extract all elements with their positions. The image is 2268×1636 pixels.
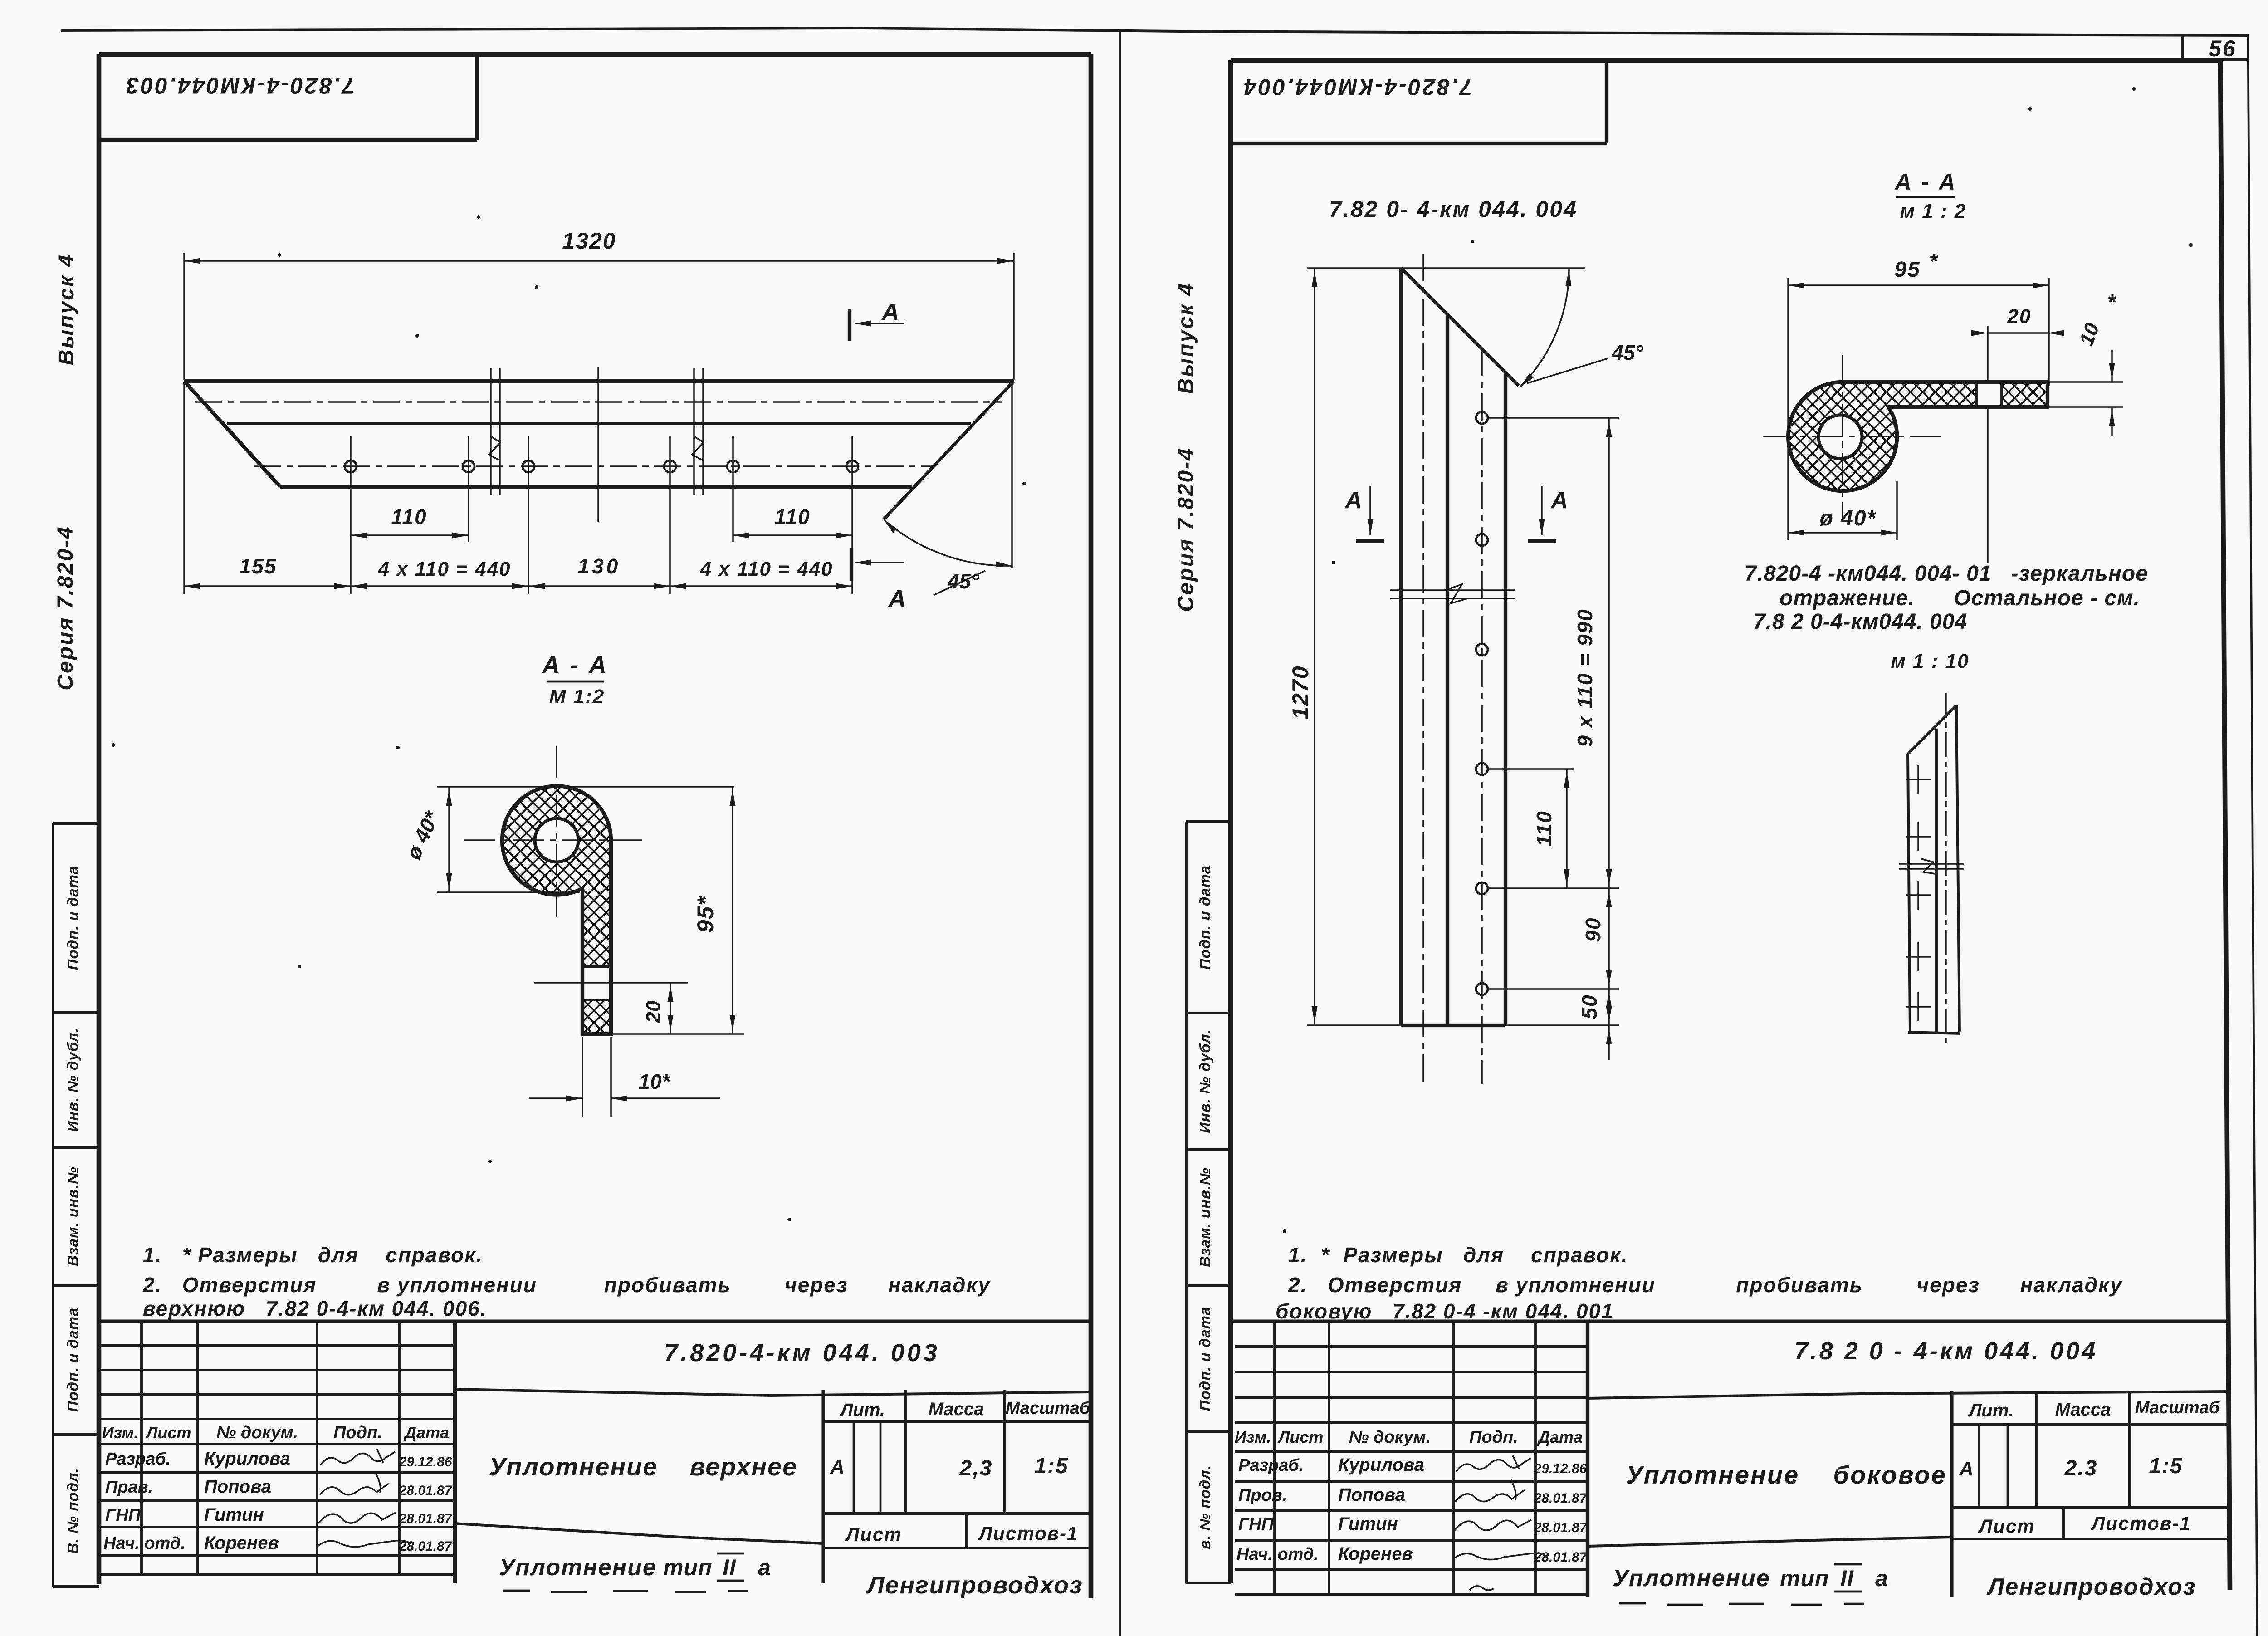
svg-text:В. № подл.: В. № подл. — [64, 1468, 81, 1554]
svg-text:29.12.86: 29.12.86 — [1534, 1461, 1587, 1476]
svg-text:Ленгипроводхоз: Ленгипроводхоз — [865, 1572, 1083, 1599]
svg-text:боковую 7.82 0-4 -км 044. 00: боковую 7.82 0-4 -км 044. 001 — [1276, 1299, 1614, 1323]
svg-text:а: а — [758, 1555, 771, 1580]
svg-text:110: 110 — [391, 505, 427, 529]
svg-text:Лист: Лист — [145, 1423, 191, 1442]
svg-text:Инв. № дубл.: Инв. № дубл. — [64, 1028, 81, 1132]
svg-text:Уплотнение боковое: Уплотнение боковое — [1626, 1460, 1946, 1489]
svg-text:1320: 1320 — [562, 228, 616, 254]
svg-text:Лит.: Лит. — [1968, 1401, 2014, 1420]
svg-text:7.820-4-КМ044.004: 7.820-4-КМ044.004 — [1242, 74, 1472, 100]
svg-text:Масса: Масса — [2055, 1400, 2111, 1420]
svg-text:4 x 110 = 440: 4 x 110 = 440 — [699, 558, 833, 580]
svg-text:Подп.: Подп. — [333, 1423, 382, 1442]
svg-text:Прав.: Прав. — [105, 1478, 153, 1497]
svg-text:Изм.: Изм. — [1235, 1428, 1271, 1446]
svg-text:Разраб.: Разраб. — [105, 1450, 171, 1469]
svg-text:7.820-4 -км044. 004- 01 -зер: 7.820-4 -км044. 004- 01 -зеркальное — [1745, 562, 2148, 586]
svg-text:Масса: Масса — [929, 1399, 984, 1419]
svg-text:в. № подл.: в. № подл. — [1197, 1465, 1213, 1549]
svg-text:9 x 110 = 990: 9 x 110 = 990 — [1573, 608, 1597, 747]
svg-text:Подп. и дата: Подп. и дата — [1197, 1307, 1213, 1411]
svg-text:Серия 7.820-4: Серия 7.820-4 — [54, 525, 78, 690]
svg-text:1. * Размеры для справо: 1. * Размеры для справок. — [143, 1243, 483, 1267]
svg-text:А: А — [881, 299, 899, 326]
svg-text:Коренев: Коренев — [204, 1533, 279, 1553]
svg-text:7.8 2 0 - 4-км 044. 004: 7.8 2 0 - 4-км 044. 004 — [1794, 1337, 2098, 1365]
svg-text:Дата: Дата — [403, 1423, 449, 1442]
svg-text:Инв. № дубл.: Инв. № дубл. — [1197, 1029, 1213, 1133]
svg-text:Курилова: Курилова — [204, 1449, 290, 1469]
svg-text:Масштаб: Масштаб — [1006, 1399, 1091, 1418]
svg-text:Уплотнение: Уплотнение — [1613, 1565, 1770, 1592]
svg-text:А: А — [888, 585, 906, 612]
svg-text:Взам. инв.№: Взам. инв.№ — [64, 1166, 81, 1266]
svg-text:ø 40*: ø 40* — [401, 807, 444, 863]
svg-text:А - А: А - А — [1894, 169, 1957, 195]
svg-text:Нач. отд.: Нач. отд. — [1237, 1545, 1319, 1564]
svg-text:7.820-4-КМ044.003: 7.820-4-КМ044.003 — [124, 73, 354, 98]
svg-text:Лист: Лист — [845, 1523, 902, 1545]
svg-text:Лит.: Лит. — [839, 1400, 885, 1420]
svg-text:М 1:2: М 1:2 — [549, 686, 605, 708]
svg-text:130: 130 — [578, 554, 621, 578]
svg-text:45°: 45° — [947, 569, 979, 593]
svg-text:7.820-4-км 044. 003: 7.820-4-км 044. 003 — [664, 1339, 940, 1367]
svg-text:А: А — [830, 1456, 845, 1478]
svg-text:10: 10 — [2075, 320, 2104, 348]
svg-text:Уплотнение верхнее: Уплотнение верхнее — [489, 1452, 798, 1481]
svg-text:ø 40*: ø 40* — [1820, 506, 1877, 530]
svg-text:29.12.86: 29.12.86 — [399, 1455, 452, 1469]
svg-text:*: * — [1929, 250, 1939, 274]
svg-text:1270: 1270 — [1288, 665, 1313, 719]
svg-text:Попова: Попова — [204, 1477, 271, 1497]
svg-text:4 x 110 = 440: 4 x 110 = 440 — [377, 558, 511, 580]
svg-text:Попова: Попова — [1338, 1485, 1405, 1505]
svg-text:Гитин: Гитин — [1338, 1514, 1398, 1534]
svg-text:10*: 10* — [638, 1070, 670, 1093]
svg-text:верхнюю 7.82 0-4-км 044. 006: верхнюю 7.82 0-4-км 044. 006. — [143, 1297, 487, 1320]
svg-text:м 1 : 2: м 1 : 2 — [1900, 200, 1967, 222]
svg-text:28.01.87: 28.01.87 — [1534, 1550, 1588, 1565]
svg-text:№ докум.: № докум. — [1349, 1428, 1431, 1447]
svg-text:Изм.: Изм. — [102, 1423, 138, 1442]
svg-text:2. Отверстия в уплот: 2. Отверстия в уплотнении пробивать чере… — [142, 1273, 991, 1297]
svg-text:Лист: Лист — [1978, 1515, 2035, 1537]
svg-text:Лист: Лист — [1277, 1428, 1324, 1446]
svg-text:95: 95 — [1894, 258, 1920, 282]
svg-text:отражение. Остальное - см: отражение. Остальное - см. — [1779, 586, 2140, 610]
svg-text:ГНП: ГНП — [1238, 1515, 1274, 1534]
svg-text:28.01.87: 28.01.87 — [1534, 1491, 1588, 1506]
svg-text:II: II — [1840, 1566, 1854, 1591]
svg-text:Подп. и дата: Подп. и дата — [1197, 865, 1213, 970]
svg-text:7.82 0- 4-км 044. 004: 7.82 0- 4-км 044. 004 — [1329, 196, 1578, 222]
svg-text:А: А — [1550, 487, 1568, 514]
svg-text:А: А — [1344, 487, 1362, 514]
svg-text:7.8 2 0-4-км044. 004: 7.8 2 0-4-км044. 004 — [1753, 610, 1967, 634]
svg-text:Дата: Дата — [1537, 1428, 1583, 1446]
svg-text:1:5: 1:5 — [2149, 1454, 2183, 1478]
svg-text:20: 20 — [2007, 305, 2032, 328]
svg-text:№ докум.: № докум. — [216, 1423, 298, 1442]
svg-text:А: А — [1959, 1458, 1974, 1480]
svg-text:Взам. инв.№: Взам. инв.№ — [1197, 1167, 1213, 1267]
svg-text:Серия 7.820-4: Серия 7.820-4 — [1174, 447, 1198, 612]
svg-text:Выпуск 4: Выпуск 4 — [1174, 282, 1198, 394]
svg-text:45°: 45° — [1611, 341, 1643, 364]
svg-text:95*: 95* — [693, 896, 718, 933]
svg-text:155: 155 — [240, 554, 277, 578]
svg-text:Курилова: Курилова — [1338, 1455, 1424, 1475]
svg-text:II: II — [723, 1555, 736, 1580]
svg-text:2. Отверстия в уплотнени: 2. Отверстия в уплотнении пробивать чере… — [1288, 1273, 2123, 1297]
svg-text:а: а — [1875, 1566, 1888, 1591]
svg-text:Нач. отд.: Нач. отд. — [103, 1534, 186, 1553]
svg-text:Коренев: Коренев — [1338, 1544, 1413, 1564]
svg-text:Выпуск 4: Выпуск 4 — [54, 254, 78, 366]
svg-text:20: 20 — [642, 1000, 665, 1023]
svg-text:1:5: 1:5 — [1034, 1454, 1068, 1478]
svg-text:110: 110 — [1532, 810, 1556, 846]
svg-text:ГНП: ГНП — [105, 1506, 141, 1525]
svg-text:тип: тип — [663, 1555, 713, 1580]
svg-text:110: 110 — [774, 505, 810, 529]
svg-text:Пров.: Пров. — [1238, 1486, 1287, 1505]
svg-text:*: * — [2107, 290, 2117, 314]
svg-text:2.3: 2.3 — [2064, 1456, 2098, 1480]
svg-text:Гитин: Гитин — [204, 1505, 264, 1525]
svg-text:Ленгипроводхоз: Ленгипроводхоз — [1986, 1574, 2196, 1600]
svg-text:Листов-1: Листов-1 — [2090, 1513, 2191, 1534]
svg-text:Уплотнение: Уплотнение — [499, 1554, 657, 1581]
svg-text:28.01.87: 28.01.87 — [399, 1483, 453, 1498]
svg-text:Подп.: Подп. — [1469, 1428, 1518, 1447]
svg-text:Листов-1: Листов-1 — [978, 1523, 1078, 1544]
svg-text:А - А: А - А — [541, 651, 608, 679]
svg-text:Подп. и дата: Подп. и дата — [64, 1308, 81, 1412]
svg-text:28.01.87: 28.01.87 — [399, 1511, 453, 1526]
svg-text:тип: тип — [1780, 1566, 1829, 1591]
svg-text:м 1 : 10: м 1 : 10 — [1891, 650, 1969, 672]
svg-text:Разраб.: Разраб. — [1238, 1456, 1304, 1475]
svg-text:1. * Размеры для справо: 1. * Размеры для справок. — [1288, 1243, 1628, 1267]
svg-text:90: 90 — [1581, 917, 1605, 942]
svg-text:56: 56 — [2209, 36, 2237, 61]
svg-text:Подп. и дата: Подп. и дата — [64, 866, 81, 970]
svg-text:50: 50 — [1578, 994, 1601, 1019]
svg-text:Масштаб: Масштаб — [2135, 1398, 2220, 1417]
svg-text:2,3: 2,3 — [959, 1456, 993, 1480]
svg-text:28.01.87: 28.01.87 — [1534, 1520, 1588, 1535]
